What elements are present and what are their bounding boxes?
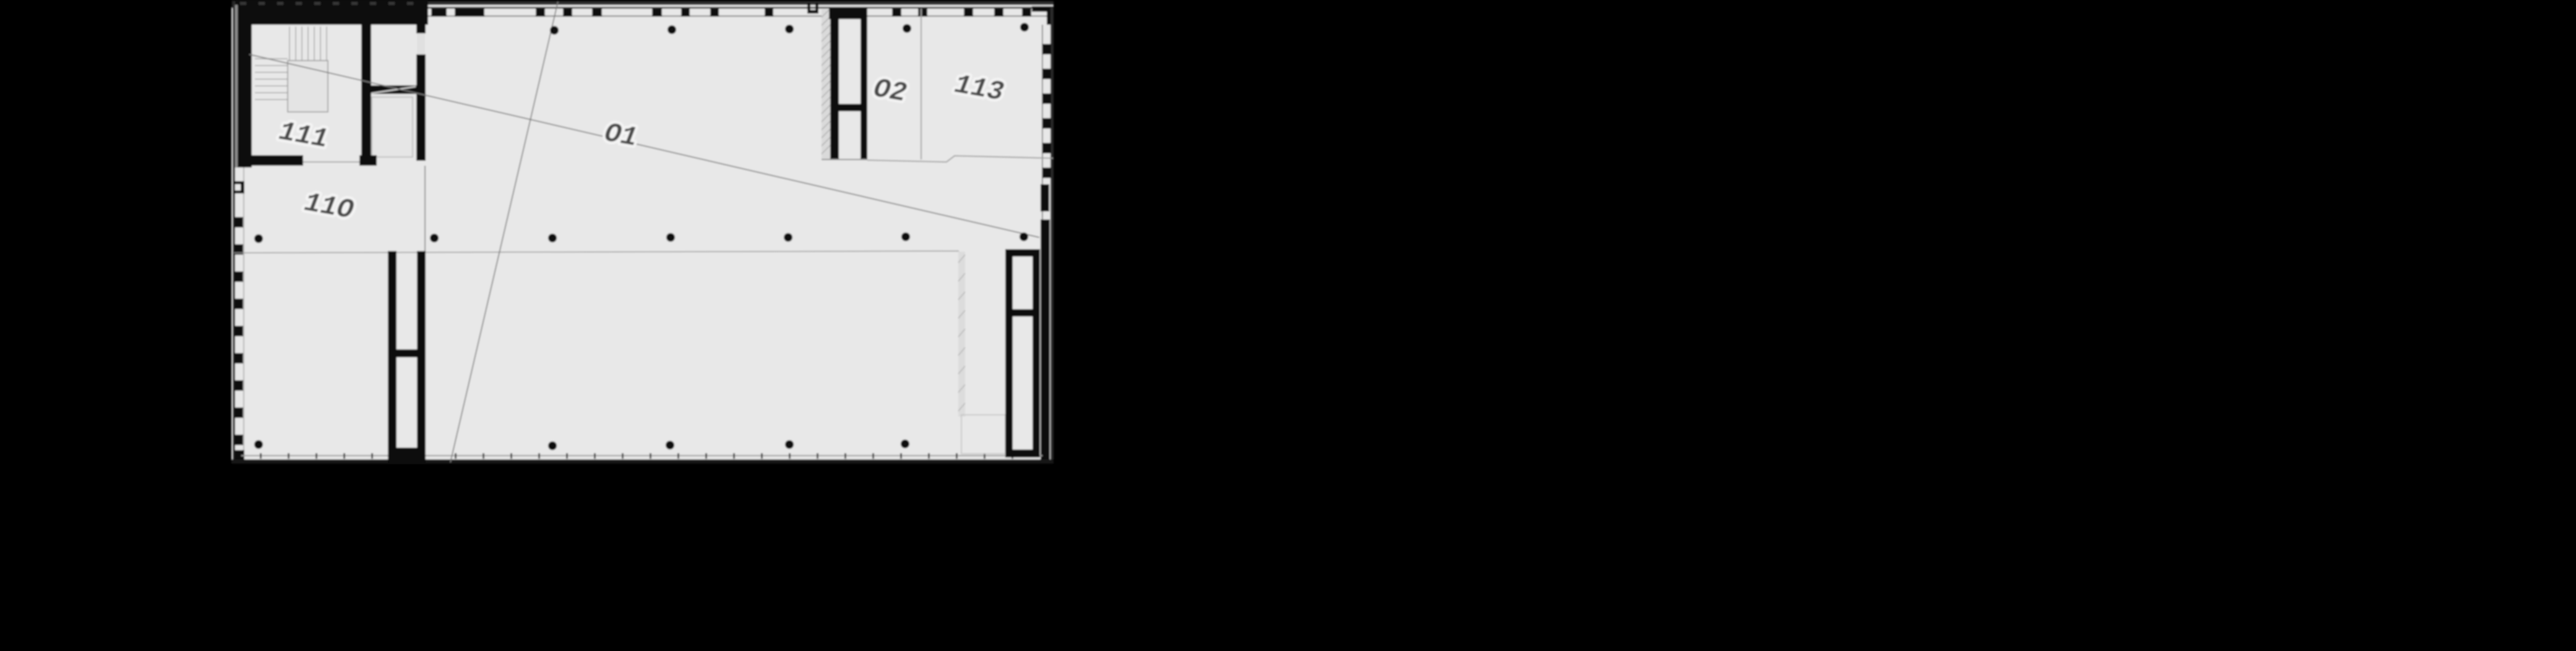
- svg-text:O2: O2: [871, 74, 909, 109]
- svg-text:O1: O1: [602, 118, 640, 154]
